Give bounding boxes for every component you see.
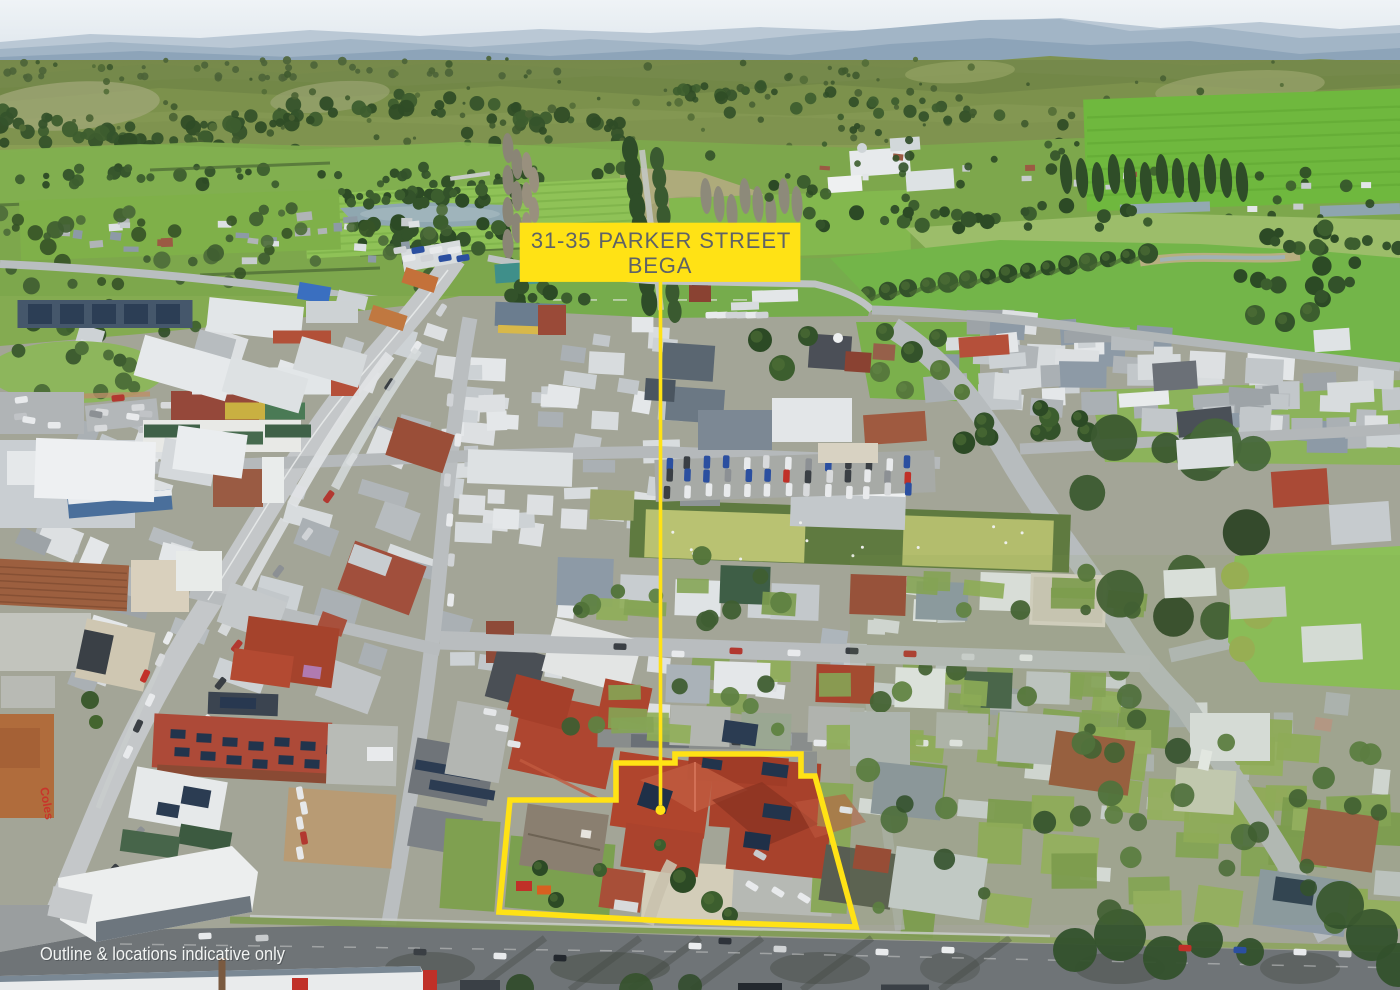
svg-text:Outline & locations indicative: Outline & locations indicative only [40,943,286,964]
svg-text:BEGA: BEGA [628,253,693,278]
svg-text:31-35 PARKER STREET: 31-35 PARKER STREET [531,228,791,253]
